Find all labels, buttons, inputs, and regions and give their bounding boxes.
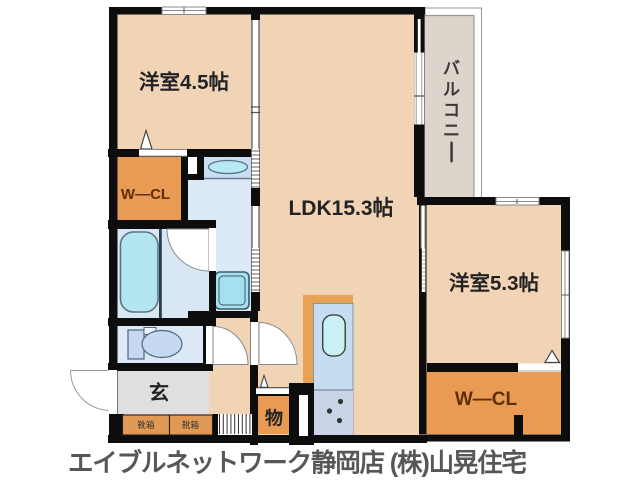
svg-text:洋室4.5帖: 洋室4.5帖 <box>139 70 229 94</box>
svg-text:ル: ル <box>443 80 460 99</box>
svg-text:W—CL: W—CL <box>121 186 170 203</box>
svg-text:物: 物 <box>265 408 283 429</box>
svg-text:ニ: ニ <box>443 121 460 140</box>
svg-text:バ: バ <box>443 59 460 78</box>
svg-text:靴箱: 靴箱 <box>182 420 200 430</box>
svg-text:コ: コ <box>443 101 460 120</box>
svg-text:エイブルネットワーク静岡店 (株)山晃住宅: エイブルネットワーク静岡店 (株)山晃住宅 <box>68 449 527 478</box>
svg-text:LDK15.3帖: LDK15.3帖 <box>288 197 393 220</box>
svg-text:玄: 玄 <box>149 381 169 405</box>
svg-text:洋室5.3帖: 洋室5.3帖 <box>449 271 539 295</box>
svg-text:靴箱: 靴箱 <box>137 420 155 430</box>
svg-text:W—CL: W—CL <box>455 389 518 410</box>
